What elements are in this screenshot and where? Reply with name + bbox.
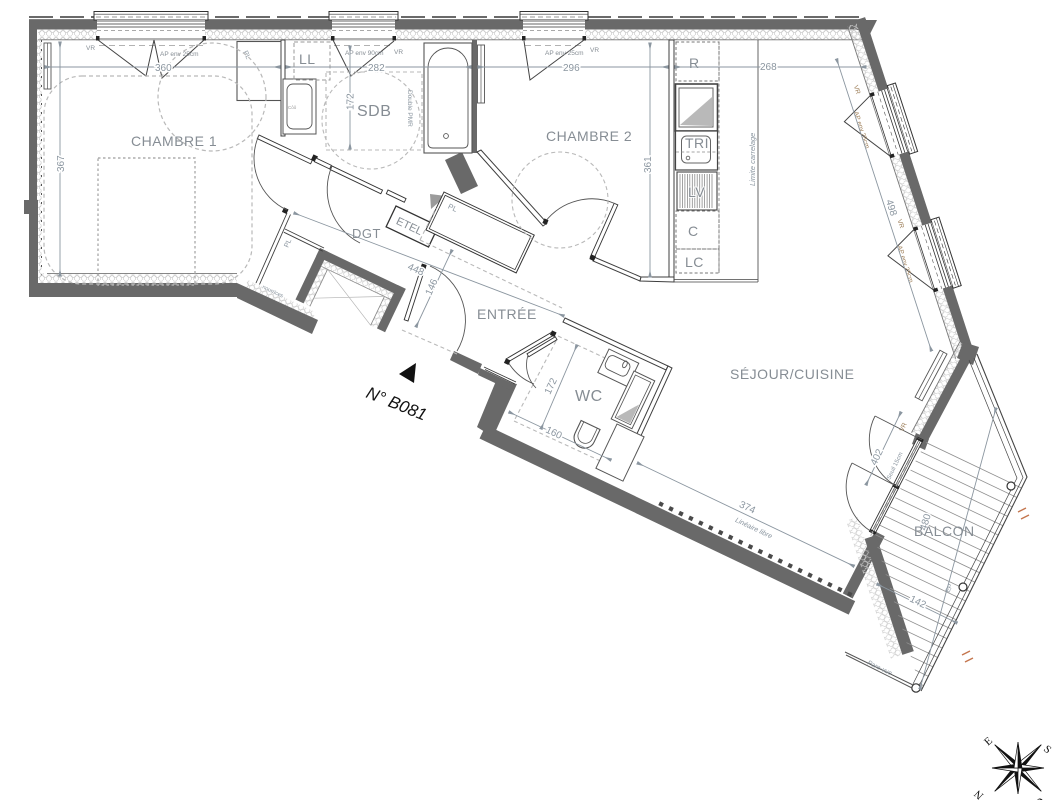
svg-text:367: 367 (56, 155, 67, 172)
svg-text:Limite carrelage: Limite carrelage (748, 133, 757, 186)
svg-text:CHAMBRE 1: CHAMBRE 1 (131, 133, 217, 149)
svg-text:361: 361 (643, 156, 654, 173)
svg-text:BALCON: BALCON (914, 523, 975, 539)
svg-text:VR: VR (394, 49, 403, 56)
svg-text:DGT: DGT (352, 226, 381, 241)
svg-text:AP env 90cm: AP env 90cm (345, 50, 384, 57)
svg-text:172: 172 (346, 93, 357, 110)
svg-text:VR: VR (86, 45, 95, 52)
svg-text:VR: VR (590, 47, 599, 54)
svg-text:LL: LL (299, 51, 316, 67)
svg-text:LC: LC (685, 254, 704, 270)
svg-text:AP env 25cm: AP env 25cm (545, 50, 584, 57)
svg-text:WC: WC (575, 388, 603, 405)
svg-text:Côô: Côô (288, 105, 297, 110)
svg-text:282: 282 (368, 63, 385, 74)
svg-text:LV: LV (688, 184, 705, 200)
svg-text:ENTRÉE: ENTRÉE (477, 306, 537, 322)
svg-text:296: 296 (563, 63, 580, 74)
svg-text:CHAMBRE 2: CHAMBRE 2 (546, 128, 632, 144)
svg-text:Double PMR: Double PMR (406, 90, 413, 127)
svg-text:360: 360 (155, 63, 172, 74)
svg-text:268: 268 (760, 62, 777, 73)
svg-text:SÉJOUR/CUISINE: SÉJOUR/CUISINE (730, 366, 854, 382)
svg-text:SDB: SDB (357, 103, 391, 120)
svg-text:C: C (688, 223, 699, 239)
svg-text:TRI: TRI (685, 135, 709, 151)
svg-text:R: R (689, 55, 700, 71)
